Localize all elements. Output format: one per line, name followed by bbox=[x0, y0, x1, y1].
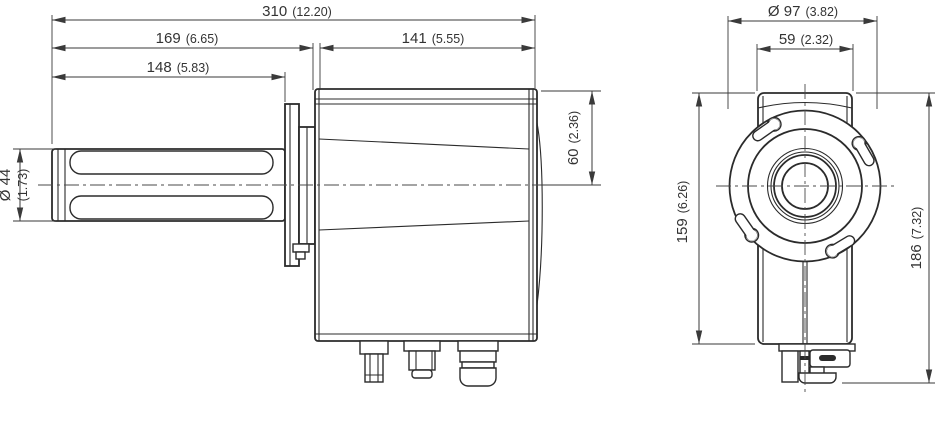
front-connector-cluster bbox=[779, 344, 855, 383]
dim-probe-length: 148(5.83) bbox=[52, 59, 285, 102]
dim-body-width: 59(2.32) bbox=[757, 31, 853, 91]
dim-value-inch: (5.55) bbox=[432, 32, 465, 46]
drawing-svg: 310(12.20) 169(6.65) 148(5.83) 141(5.55)… bbox=[0, 0, 940, 426]
gland-large-plate bbox=[458, 341, 498, 351]
dim-value-mm: 169 bbox=[156, 30, 181, 47]
dim-label-169: 169(6.65) bbox=[156, 30, 219, 47]
cable-gland-small bbox=[404, 341, 440, 378]
purge-fitting-top bbox=[293, 244, 309, 252]
gland-large-body bbox=[460, 351, 496, 362]
front-view: Ø 97(3.82) 59(2.32) 159(6.26) 186(7.32) bbox=[674, 3, 935, 392]
dim-value-inch: (3.82) bbox=[805, 5, 838, 19]
dim-label-159: 159(6.26) bbox=[674, 181, 691, 244]
dim-label-60: 60(2.36) bbox=[565, 111, 582, 165]
dim-top-to-center: 60(2.36) bbox=[541, 91, 601, 185]
dim-value-mm: 148 bbox=[147, 59, 172, 76]
dim-label-141: 141(5.55) bbox=[402, 30, 465, 47]
dim-label-d44-mm: Ø 44 bbox=[0, 169, 14, 202]
dim-value-mm: 59 bbox=[779, 31, 796, 48]
gland-small-plate bbox=[404, 341, 440, 351]
dim-value-mm: Ø 97 bbox=[768, 3, 801, 20]
connector-center-band bbox=[800, 356, 809, 360]
dim-value-mm: 60 bbox=[565, 148, 582, 165]
connector-plug bbox=[360, 341, 388, 382]
purge-fitting-bottom bbox=[296, 252, 305, 259]
technical-drawing-canvas: 310(12.20) 169(6.65) 148(5.83) 141(5.55)… bbox=[0, 0, 940, 426]
dim-label-186: 186(7.32) bbox=[908, 207, 925, 270]
plug-barrel bbox=[365, 354, 383, 382]
dim-value-inch: (7.32) bbox=[910, 207, 924, 240]
connector-slot-mark bbox=[819, 355, 836, 361]
dim-value-mm: 310 bbox=[262, 3, 287, 20]
probe-slot-bottom bbox=[70, 196, 273, 219]
connector-left-block bbox=[782, 351, 798, 382]
gland-small-cap bbox=[412, 370, 432, 378]
dim-value-inch: (6.26) bbox=[676, 181, 690, 214]
dim-label-310: 310(12.20) bbox=[262, 3, 332, 20]
probe-slot-top bbox=[70, 151, 273, 174]
sensor-body bbox=[315, 89, 542, 341]
dim-value-inch: (12.20) bbox=[292, 5, 332, 19]
dim-value-inch: (2.36) bbox=[567, 111, 581, 144]
dim-value-inch: (6.65) bbox=[186, 32, 219, 46]
dim-label-d44-inch: (1.73) bbox=[16, 169, 30, 202]
dim-value-mm: 141 bbox=[402, 30, 427, 47]
dim-label-59: 59(2.32) bbox=[779, 31, 833, 48]
body-outline bbox=[315, 89, 537, 341]
side-view: 310(12.20) 169(6.65) 148(5.83) 141(5.55)… bbox=[0, 3, 602, 386]
dim-value-mm: 159 bbox=[674, 218, 691, 243]
dim-label-d97: Ø 97(3.82) bbox=[768, 3, 838, 20]
dim-value-inch: (5.83) bbox=[177, 61, 210, 75]
cable-gland-large bbox=[458, 341, 498, 386]
gland-large-cap bbox=[460, 368, 496, 386]
gland-small-hex bbox=[409, 351, 435, 370]
plug-collar bbox=[360, 341, 388, 354]
dim-value-inch: (2.32) bbox=[801, 33, 834, 47]
dim-label-148: 148(5.83) bbox=[147, 59, 210, 76]
dim-front-to-body: 169(6.65) bbox=[52, 30, 313, 90]
dim-value-mm: 186 bbox=[908, 244, 925, 269]
gland-large-band bbox=[462, 362, 494, 368]
dim-body-length: 141(5.55) bbox=[320, 30, 535, 90]
